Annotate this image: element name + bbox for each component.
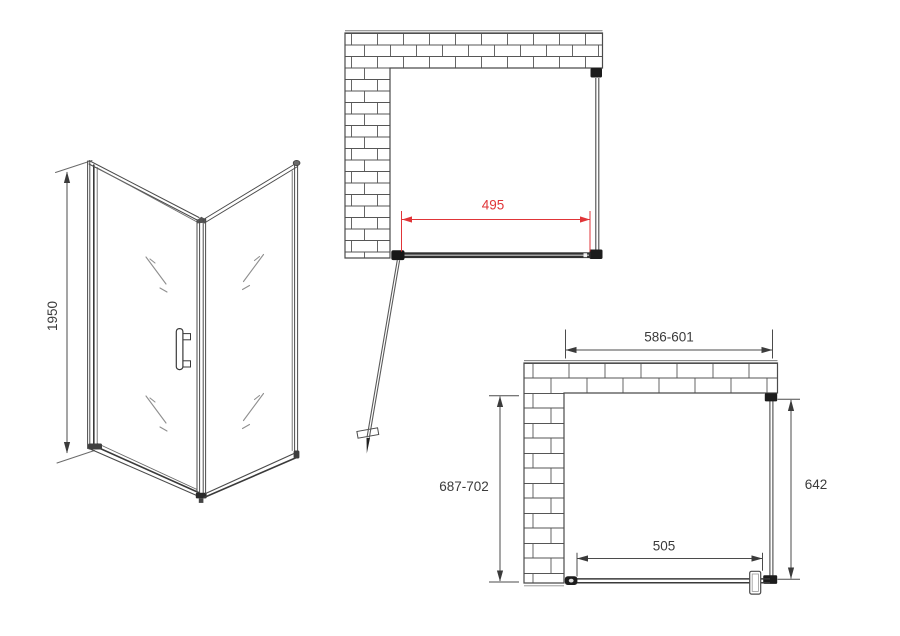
door-pivot — [391, 250, 404, 260]
overall-width-label: 586-601 — [644, 330, 694, 345]
wall-bracket-top — [591, 68, 603, 78]
door-closed-bar — [402, 252, 591, 258]
height-dimension-label: 1950 — [45, 301, 60, 331]
top-cap — [293, 160, 300, 165]
background — [0, 0, 900, 636]
wall-bracket-top — [765, 393, 777, 401]
side-panel-depth-label: 642 — [805, 477, 828, 492]
bottom-right-fitting — [294, 451, 300, 459]
door-width-label: 495 — [482, 198, 505, 213]
overall-depth-label: 687-702 — [439, 479, 489, 494]
front-width-label: 505 — [653, 539, 676, 554]
bottom-left-fitting — [88, 444, 102, 450]
corner-bracket — [590, 250, 603, 260]
drawing-canvas: 1950 — [0, 0, 900, 636]
door-handle-plan — [750, 571, 761, 594]
